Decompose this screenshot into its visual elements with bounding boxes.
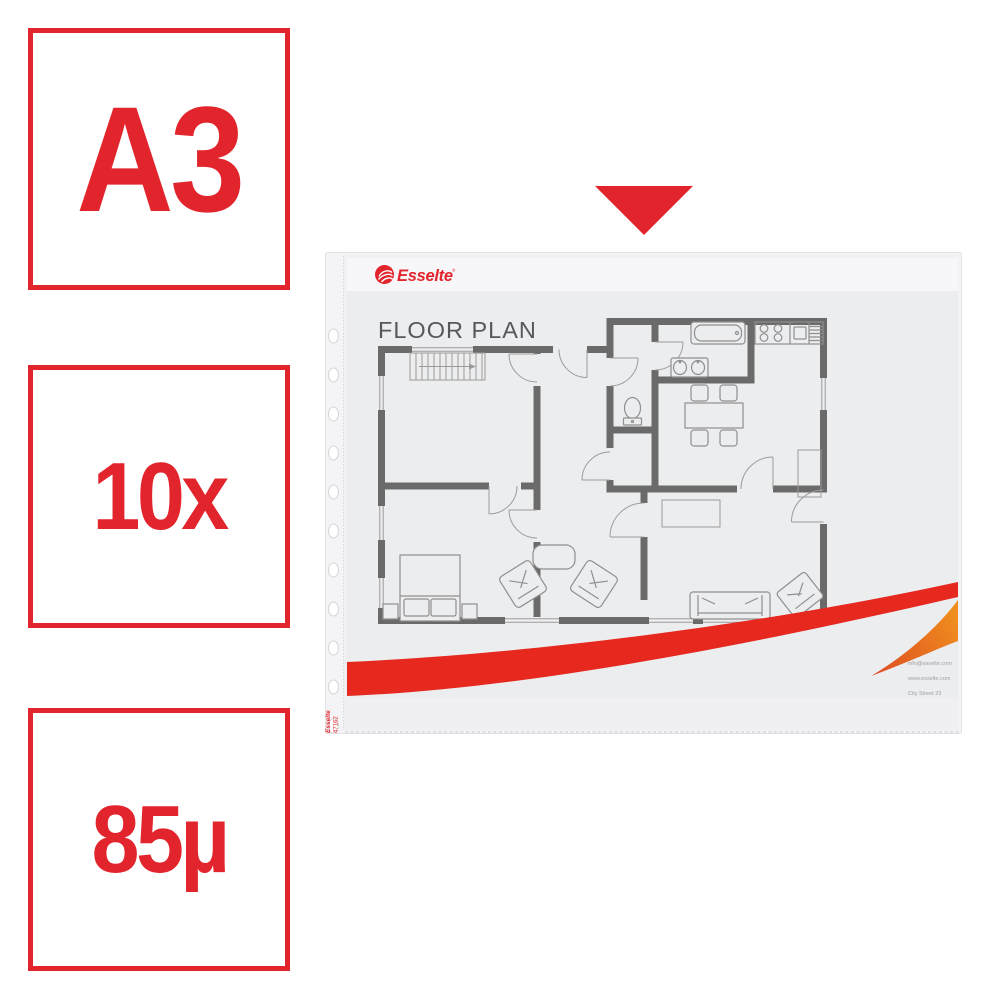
badge-format: A3	[28, 28, 290, 290]
sofa	[690, 592, 770, 619]
esselte-logo: Esselte ®	[375, 265, 456, 285]
edge-print-code: 47162	[334, 716, 340, 733]
badge-thickness: 85µ	[28, 708, 290, 971]
contact-line-web: www.esselte.com	[907, 676, 951, 682]
toilet	[624, 398, 642, 426]
down-arrow-icon	[595, 186, 693, 235]
sheet-protector: Esselte ® FLOOR PLAN	[325, 252, 962, 738]
contact-line-address: City Street 23	[908, 691, 941, 697]
badge-format-label: A3	[76, 84, 241, 234]
edge-print-brand: Esselte	[325, 710, 332, 733]
badge-quantity: 10x	[28, 365, 290, 628]
pocket-bottom-band	[343, 698, 959, 731]
coffee-table	[533, 545, 575, 569]
double-sink	[671, 358, 708, 377]
floor-plan-title: FLOOR PLAN	[378, 317, 537, 343]
contact-line-email: info@esselte.com	[908, 661, 952, 667]
esselte-logo-text: Esselte	[397, 267, 453, 285]
bathtub	[691, 322, 745, 344]
badge-quantity-label: 10x	[92, 449, 225, 545]
badge-thickness-label: 85µ	[91, 792, 226, 888]
